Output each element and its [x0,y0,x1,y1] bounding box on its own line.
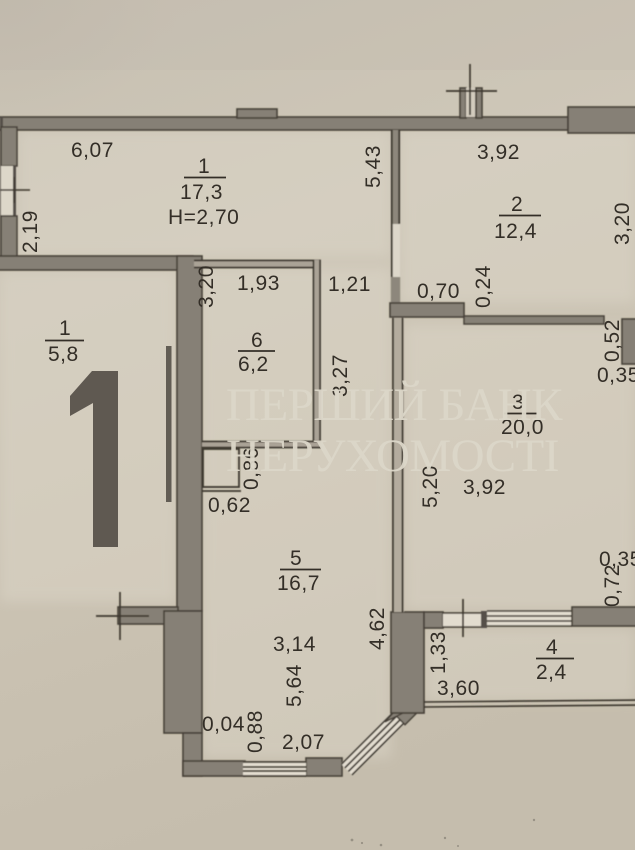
svg-text:0,62: 0,62 [208,494,251,517]
svg-text:2: 2 [511,193,523,216]
svg-text:0,72: 0,72 [601,564,624,607]
svg-text:Н=2,70: Н=2,70 [168,206,239,229]
svg-text:6,07: 6,07 [71,139,114,162]
svg-text:4,62: 4,62 [366,607,389,650]
svg-text:3,60: 3,60 [437,677,480,700]
svg-text:1,21: 1,21 [328,273,371,296]
svg-text:2,07: 2,07 [282,731,325,754]
svg-text:ПЕРШИЙ БАНК: ПЕРШИЙ БАНК [226,379,563,431]
svg-text:0,04: 0,04 [202,713,245,736]
svg-text:12,4: 12,4 [494,220,537,243]
svg-text:3,20: 3,20 [195,265,218,308]
svg-text:4: 4 [546,636,558,659]
svg-text:5,8: 5,8 [48,343,79,366]
svg-text:2,19: 2,19 [19,210,42,253]
svg-text:3,20: 3,20 [611,202,634,245]
svg-text:0,35: 0,35 [597,364,635,387]
svg-text:НЕРУХОМОСТІ: НЕРУХОМОСТІ [226,430,559,482]
svg-text:6: 6 [251,329,263,352]
svg-text:1,93: 1,93 [237,272,280,295]
svg-text:5,64: 5,64 [283,664,306,707]
svg-text:17,3: 17,3 [180,181,223,204]
svg-text:0,70: 0,70 [417,280,460,303]
svg-text:2,4: 2,4 [536,661,567,684]
svg-text:5,43: 5,43 [362,145,385,188]
svg-text:1: 1 [59,317,71,340]
svg-text:3,92: 3,92 [477,141,520,164]
svg-text:0,52: 0,52 [601,319,624,362]
svg-text:16,7: 16,7 [277,572,320,595]
svg-text:6,2: 6,2 [238,353,269,376]
svg-text:1,33: 1,33 [427,631,450,674]
svg-text:5: 5 [290,547,302,570]
svg-text:3,14: 3,14 [273,633,316,656]
svg-text:0,24: 0,24 [472,265,495,308]
svg-text:1: 1 [198,155,210,178]
svg-text:0,88: 0,88 [244,710,267,753]
